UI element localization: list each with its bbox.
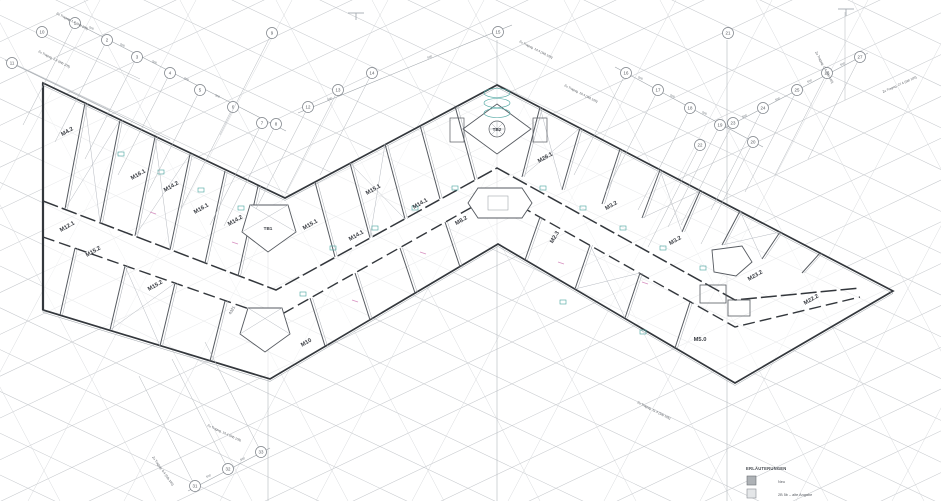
dimension-label: 500 — [806, 78, 813, 84]
dimension-label: 500 — [637, 75, 644, 81]
grid-bubble-number: 19 — [718, 123, 723, 128]
dimension-label: 500 — [119, 42, 126, 48]
grid-line — [892, 0, 941, 501]
legend-title: ERLÄUTERUNGEN — [746, 466, 787, 471]
axis-annotation: Zu Tragwg. 9.4 (Stb 105) — [151, 455, 175, 486]
dimension-label: 500 — [701, 110, 708, 116]
grid-bubble-number: 20 — [751, 140, 756, 145]
grid-bubble-number: 31 — [193, 484, 198, 489]
grid-line — [0, 431, 941, 501]
dimension-label: 500 — [214, 93, 221, 99]
axis-annotation: Zu Tragwg. C.4 (Stb 105) — [814, 51, 834, 84]
axis-annotation: Zu Tragwg. 15.4 (Stb 105) — [564, 83, 599, 103]
dimension-label: 500 — [151, 59, 158, 65]
floor-plan-sheet: M4.2M16.1M14.2M16.1M14.2M15.1M14.1M15.1M… — [0, 0, 941, 501]
floor-plan-canvas: M4.2M16.1M14.2M16.1M14.2M15.1M14.1M15.1M… — [0, 0, 941, 501]
dimension-label: 500 — [774, 96, 781, 102]
axis-tail — [172, 359, 228, 469]
axis-tail — [42, 32, 140, 79]
legend: ERLÄUTERUNGEN Neu 2B 5b – alte Angabe — [746, 466, 812, 498]
grid-bubble-number: 17 — [656, 88, 661, 93]
axis-annotation: Zu Tragwg. 11.4 (Stb 105) — [637, 400, 672, 420]
axis-annotation: Zu Tragwg. 10.4 (Stb 105) — [207, 423, 242, 442]
grid-line — [0, 0, 941, 44]
room-label: TB2 — [493, 127, 502, 132]
axis-annotation: Zu Tragwg. 14.4 (Stb 105) — [519, 39, 554, 59]
grid-line — [0, 391, 941, 501]
grid-bubble-number: 24 — [761, 106, 766, 111]
section-mark — [838, 9, 854, 16]
grid-bubble-number: 25 — [795, 88, 800, 93]
grid-line — [852, 0, 941, 501]
dimension-label: 500 — [327, 96, 333, 102]
legend-swatch-new — [747, 476, 756, 485]
grid-line — [0, 347, 941, 501]
legend-swatch-existing — [747, 489, 756, 498]
grid-bubble-number: 12 — [306, 105, 311, 110]
axis-tail — [139, 376, 195, 486]
core-mid — [468, 188, 532, 218]
dimension-label: 500 — [427, 54, 433, 60]
dimension-label: 500 — [741, 113, 748, 119]
grid-bubble-number: 15 — [496, 30, 501, 35]
grid-line — [0, 0, 941, 42]
dimension-label: 500 — [205, 473, 212, 479]
legend-label-existing: 2B 5b – alte Angabe — [778, 493, 812, 497]
grid-bubble-number: 32 — [226, 467, 231, 472]
grid-bubble-number: 13 — [336, 88, 341, 93]
axis-annotation: Zu Tragwg. 27.4 (Stb 105) — [882, 75, 917, 94]
dimension-label: 500 — [669, 93, 676, 99]
grid-line — [796, 0, 941, 501]
grid-line — [0, 433, 941, 501]
grid-bubble-number: 21 — [726, 31, 731, 36]
dimension-label: 500 — [88, 25, 95, 31]
legend-label-new: Neu — [778, 480, 785, 484]
grid-bubble-number: 16 — [624, 71, 629, 76]
grid-bubble-number: 11 — [10, 61, 15, 66]
room-label: M5.0 — [694, 337, 707, 343]
grid-bubble-number: 14 — [370, 71, 375, 76]
grid-bubble-number: 18 — [688, 106, 693, 111]
grid-bubble-number: 33 — [259, 450, 264, 455]
grid-bubble-number: 10 — [40, 30, 45, 35]
grid-bubble-number: 23 — [731, 121, 736, 126]
grid-bubble-number: 22 — [698, 143, 703, 148]
room-label: TB1 — [264, 226, 273, 231]
bathroom-fixture — [560, 300, 566, 304]
grid-line — [0, 0, 941, 86]
grid-bubble-number: 27 — [858, 55, 863, 60]
section-mark — [348, 13, 364, 20]
